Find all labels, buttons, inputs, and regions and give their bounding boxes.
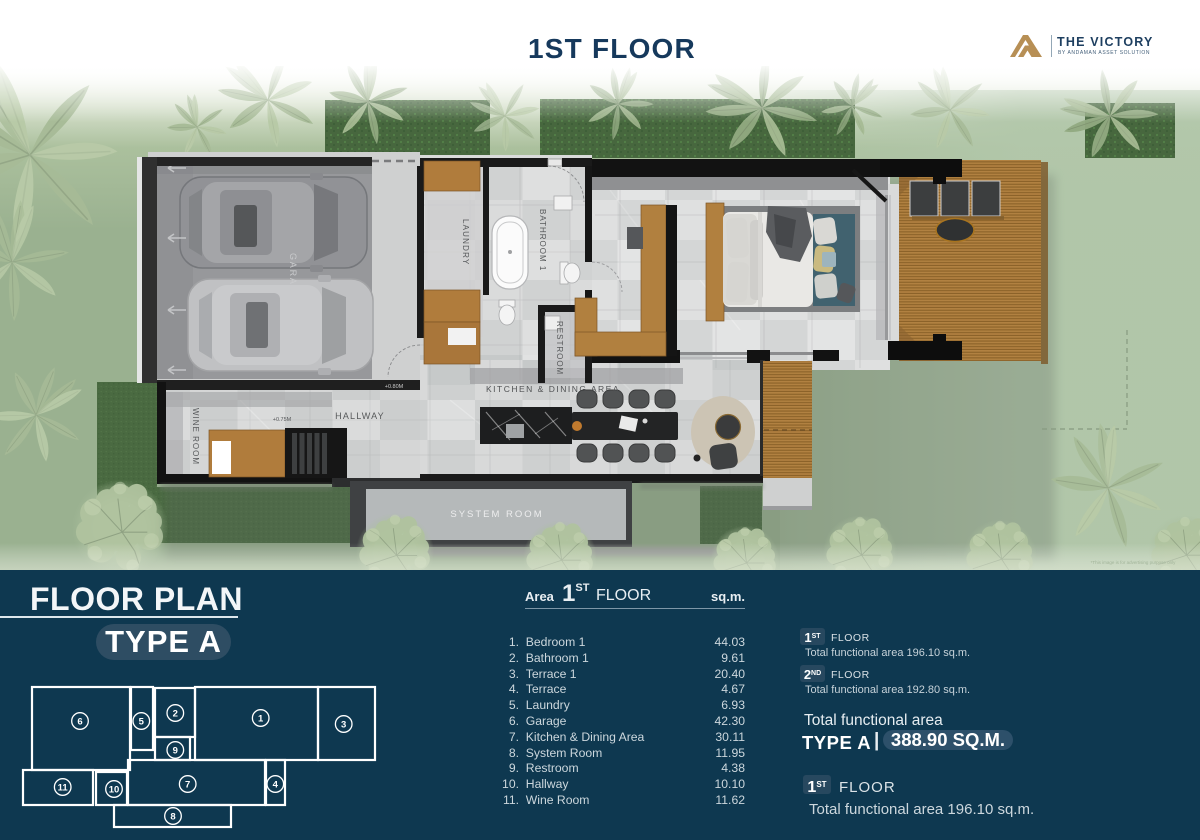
svg-text:+0.75M: +0.75M — [273, 417, 292, 423]
svg-text:2: 2 — [173, 709, 178, 720]
svg-text:HALLWAY: HALLWAY — [335, 411, 385, 421]
svg-text:3: 3 — [341, 720, 346, 731]
svg-text:9: 9 — [173, 746, 178, 757]
svg-text:LAUNDRY: LAUNDRY — [461, 219, 470, 266]
svg-text:4: 4 — [273, 780, 279, 791]
svg-text:10: 10 — [109, 785, 120, 796]
svg-text:1: 1 — [258, 714, 264, 725]
svg-text:GARAGE: GARAGE — [288, 253, 298, 302]
svg-text:KITCHEN & DINING AREA: KITCHEN & DINING AREA — [486, 384, 620, 394]
svg-text:WINE ROOM: WINE ROOM — [191, 408, 200, 465]
svg-text:+0.80M: +0.80M — [385, 384, 404, 390]
svg-text:8: 8 — [170, 812, 175, 823]
svg-text:7: 7 — [185, 780, 190, 791]
svg-text:5: 5 — [139, 717, 145, 728]
svg-text:BATHROOM 1: BATHROOM 1 — [538, 209, 547, 271]
svg-text:RESTROOM: RESTROOM — [555, 321, 564, 375]
svg-text:11: 11 — [58, 783, 69, 794]
svg-text:6: 6 — [77, 717, 82, 728]
svg-text:SYSTEM ROOM: SYSTEM ROOM — [450, 509, 543, 520]
